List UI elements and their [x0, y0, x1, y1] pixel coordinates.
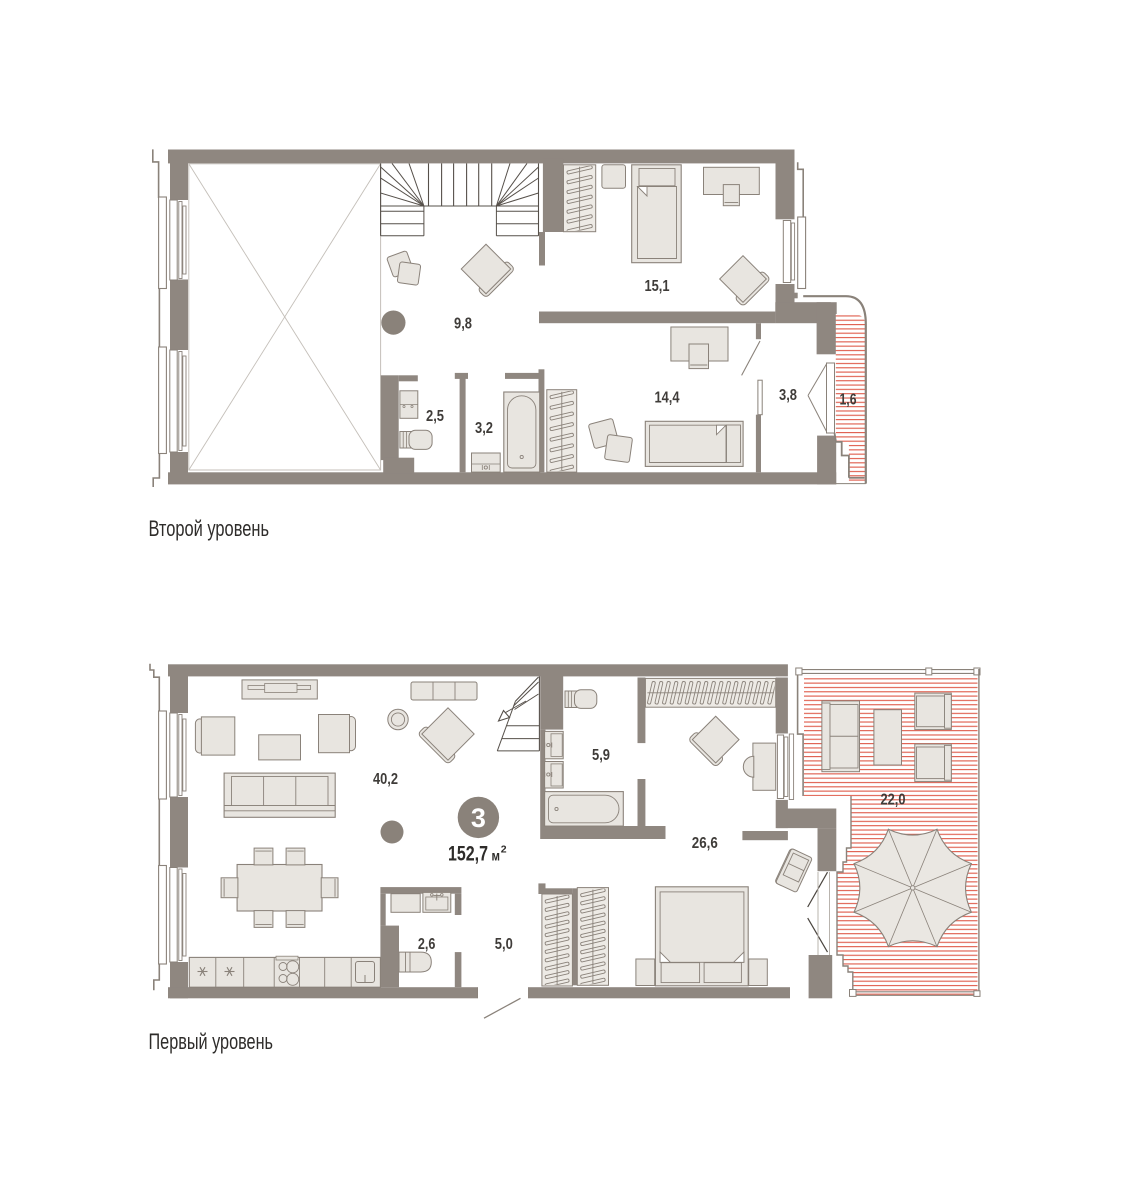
svg-text:1,6: 1,6	[840, 392, 857, 409]
svg-text:2,5: 2,5	[426, 408, 444, 425]
svg-text:152,7: 152,7	[448, 842, 488, 866]
svg-text:Первый уровень: Первый уровень	[149, 1029, 274, 1054]
svg-text:15,1: 15,1	[645, 278, 670, 295]
svg-text:3,8: 3,8	[779, 387, 797, 404]
svg-text:5,0: 5,0	[495, 936, 513, 953]
svg-text:3,2: 3,2	[475, 420, 493, 437]
svg-text:9,8: 9,8	[454, 315, 472, 332]
svg-text:26,6: 26,6	[692, 835, 718, 852]
svg-text:40,2: 40,2	[373, 771, 398, 788]
svg-text:5,9: 5,9	[592, 747, 610, 764]
svg-text:2: 2	[501, 844, 507, 856]
svg-text:22,0: 22,0	[881, 791, 906, 808]
svg-text:3: 3	[471, 803, 486, 833]
svg-text:14,4: 14,4	[655, 389, 680, 406]
svg-text:2,6: 2,6	[418, 936, 436, 953]
svg-text:Второй уровень: Второй уровень	[149, 516, 270, 541]
svg-text:м: м	[492, 848, 501, 864]
